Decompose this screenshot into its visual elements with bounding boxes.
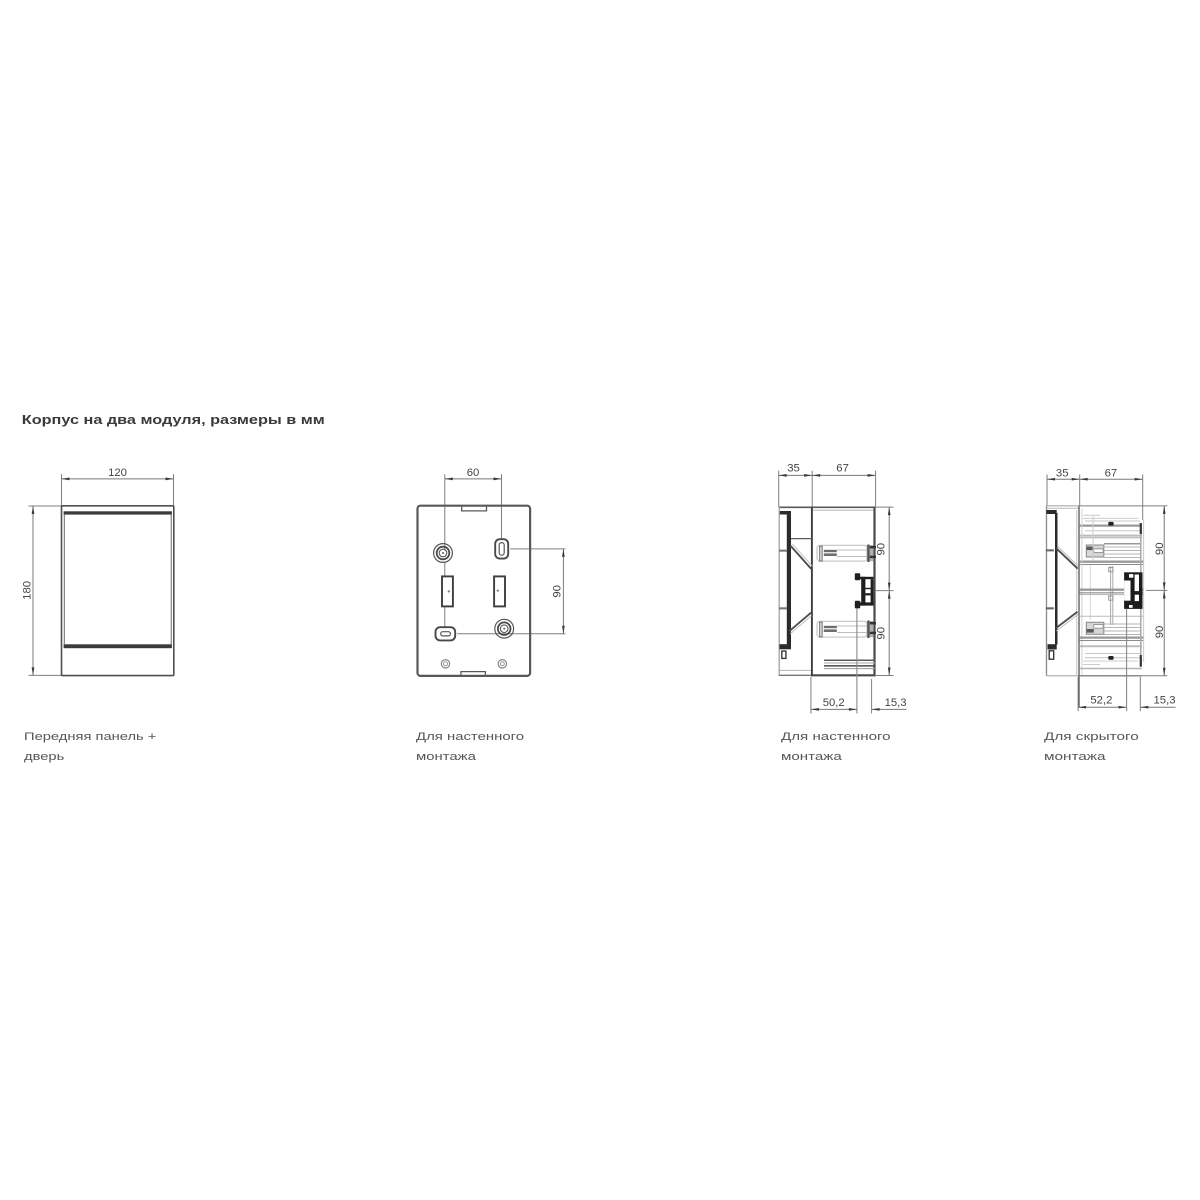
svg-text:50,2: 50,2	[823, 697, 845, 709]
svg-text:52,2: 52,2	[1090, 694, 1112, 706]
svg-text:35: 35	[1056, 467, 1069, 479]
svg-text:90: 90	[1154, 543, 1166, 556]
svg-text:180: 180	[21, 581, 33, 600]
svg-text:35: 35	[787, 463, 800, 475]
svg-text:90: 90	[876, 627, 888, 640]
svg-text:60: 60	[467, 467, 480, 479]
svg-text:67: 67	[1105, 467, 1118, 479]
svg-text:67: 67	[836, 463, 849, 475]
svg-text:120: 120	[108, 467, 127, 479]
svg-text:90: 90	[1154, 626, 1166, 639]
svg-text:90: 90	[876, 543, 888, 556]
svg-text:15,3: 15,3	[885, 697, 907, 709]
svg-text:90: 90	[551, 585, 563, 598]
svg-text:Корпус на два модуля, размеры: Корпус на два модуля, размеры в мм	[22, 413, 325, 427]
svg-text:15,3: 15,3	[1154, 694, 1176, 706]
